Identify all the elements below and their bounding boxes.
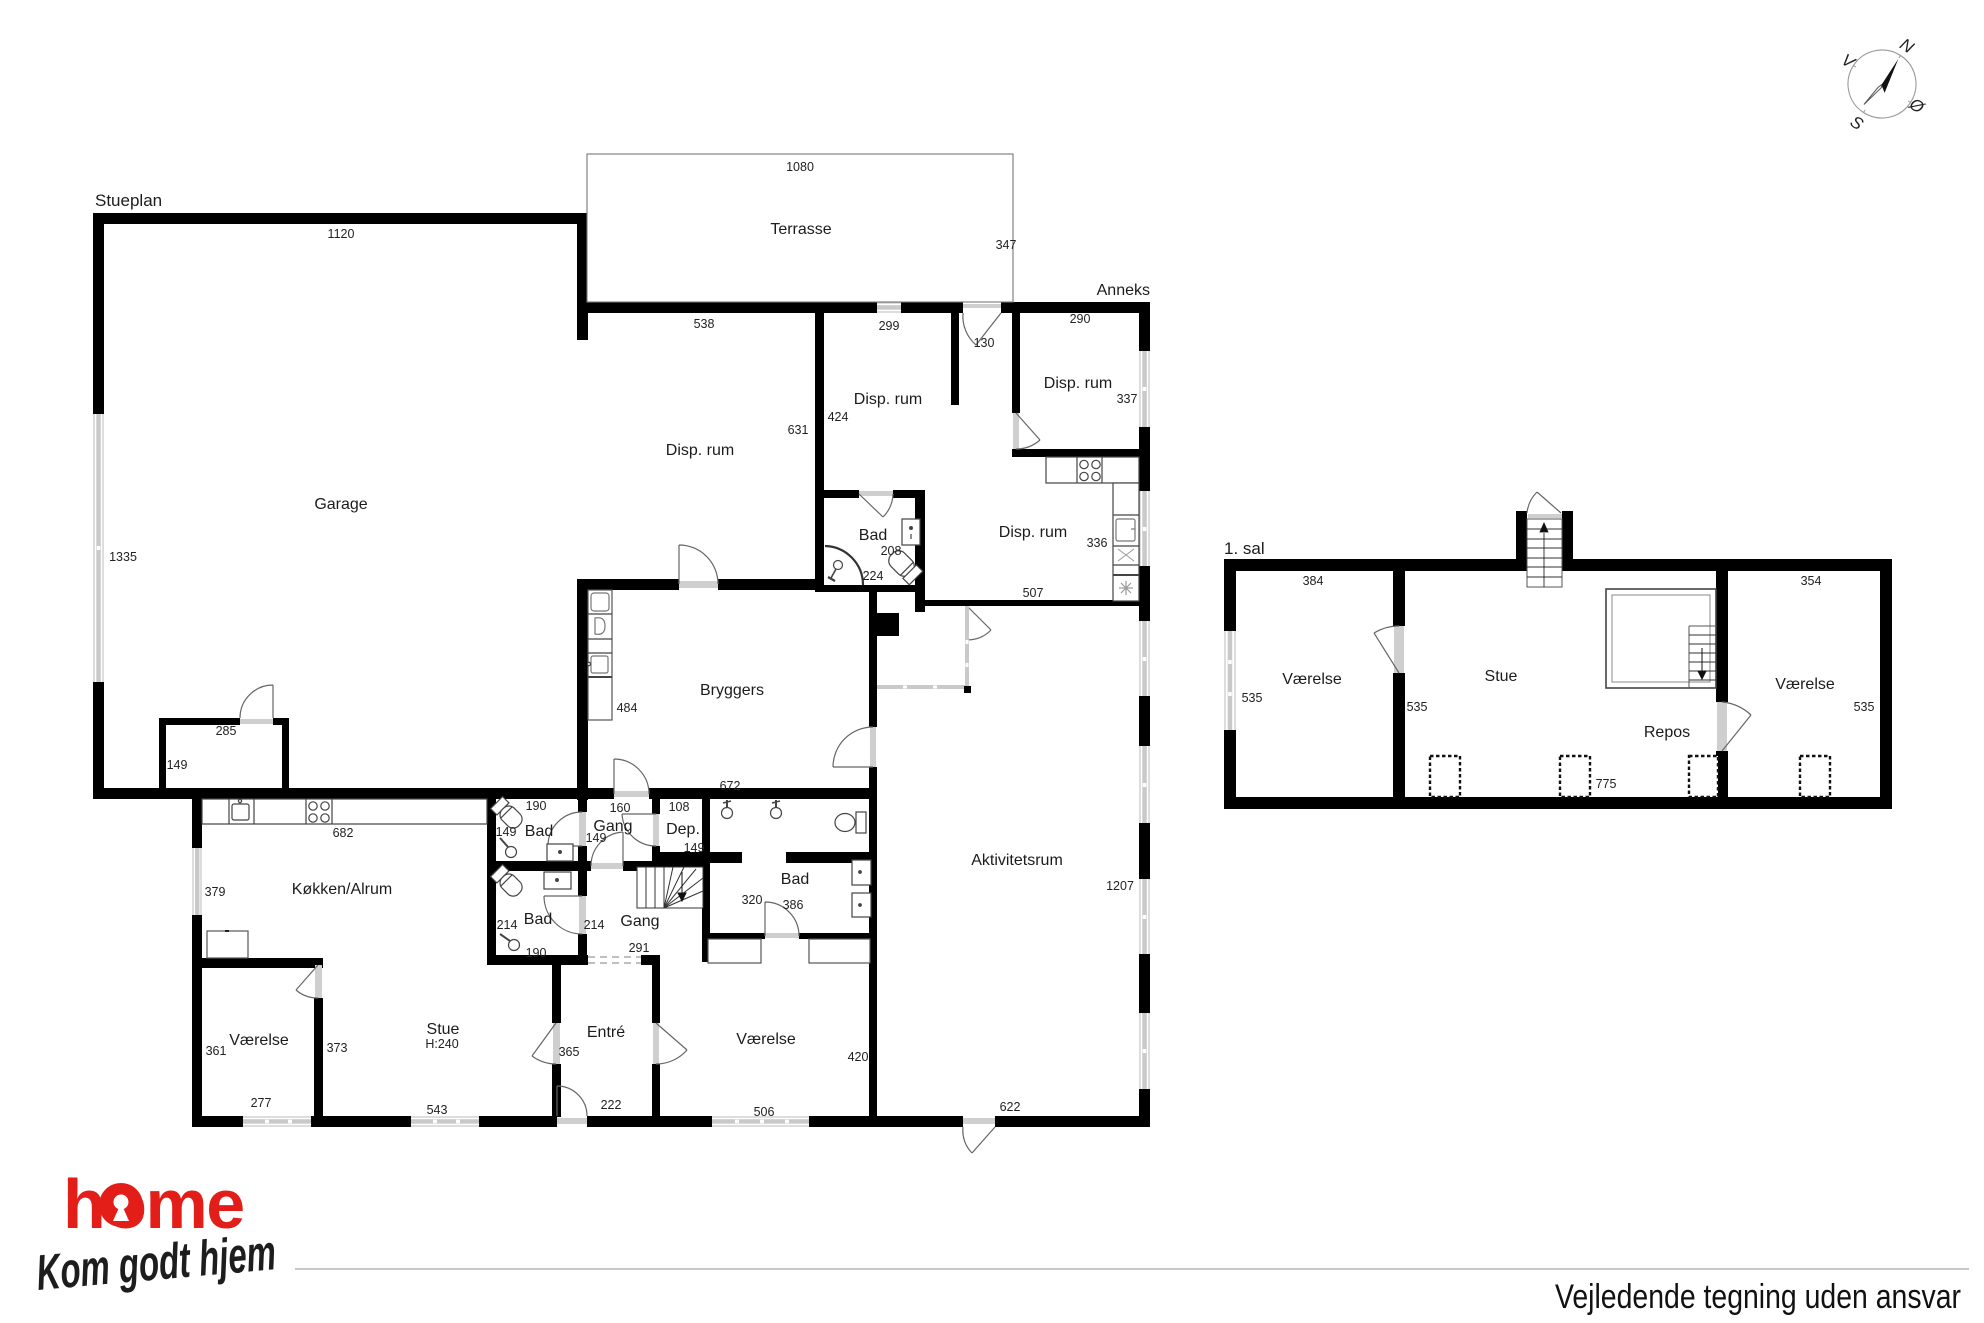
svg-text:Aktivitetsrum: Aktivitetsrum xyxy=(971,852,1063,869)
svg-text:Disp. rum: Disp. rum xyxy=(999,524,1067,541)
svg-text:130: 130 xyxy=(974,336,995,350)
svg-text:775: 775 xyxy=(1596,777,1617,791)
svg-text:506: 506 xyxy=(754,1105,775,1119)
svg-text:208: 208 xyxy=(881,544,902,558)
svg-text:Garage: Garage xyxy=(314,496,367,513)
svg-text:543: 543 xyxy=(427,1103,448,1117)
svg-text:Værelse: Værelse xyxy=(229,1032,289,1049)
svg-text:1120: 1120 xyxy=(328,227,355,241)
svg-text:424: 424 xyxy=(828,410,849,424)
svg-text:507: 507 xyxy=(1023,586,1044,600)
svg-text:384: 384 xyxy=(1303,574,1324,588)
svg-text:535: 535 xyxy=(1407,700,1428,714)
svg-text:Repos: Repos xyxy=(1644,724,1690,741)
svg-text:222: 222 xyxy=(601,1098,622,1112)
svg-text:Bad: Bad xyxy=(524,911,552,928)
svg-text:285: 285 xyxy=(216,724,237,738)
svg-text:Disp. rum: Disp. rum xyxy=(666,442,734,459)
svg-text:320: 320 xyxy=(742,893,763,907)
svg-text:Bad: Bad xyxy=(525,823,553,840)
svg-text:Stueplan: Stueplan xyxy=(95,191,162,210)
svg-text:373: 373 xyxy=(327,1041,348,1055)
svg-text:214: 214 xyxy=(584,918,605,932)
svg-text:365: 365 xyxy=(559,1045,580,1059)
svg-text:386: 386 xyxy=(783,898,804,912)
svg-text:1207: 1207 xyxy=(1106,879,1134,893)
svg-text:149: 149 xyxy=(167,758,188,772)
svg-text:631: 631 xyxy=(788,423,809,437)
svg-text:Stue: Stue xyxy=(427,1021,460,1038)
svg-text:290: 290 xyxy=(1070,312,1091,326)
svg-text:Bad: Bad xyxy=(859,527,887,544)
svg-text:Værelse: Værelse xyxy=(736,1031,796,1048)
svg-text:379: 379 xyxy=(205,885,226,899)
svg-text:1080: 1080 xyxy=(786,160,814,174)
svg-text:Køkken/Alrum: Køkken/Alrum xyxy=(292,881,392,898)
svg-text:Værelse: Værelse xyxy=(1282,671,1342,688)
svg-text:Bad: Bad xyxy=(781,871,809,888)
svg-text:214: 214 xyxy=(497,918,518,932)
svg-text:347: 347 xyxy=(996,238,1017,252)
svg-text:535: 535 xyxy=(1242,691,1263,705)
svg-text:Terrasse: Terrasse xyxy=(770,221,831,238)
svg-text:149: 149 xyxy=(684,841,705,855)
svg-text:420: 420 xyxy=(848,1050,869,1064)
svg-text:535: 535 xyxy=(1854,700,1875,714)
svg-text:Bryggers: Bryggers xyxy=(700,682,764,699)
svg-text:622: 622 xyxy=(1000,1100,1021,1114)
svg-text:354: 354 xyxy=(1801,574,1822,588)
svg-text:672: 672 xyxy=(720,779,741,793)
svg-text:149: 149 xyxy=(586,831,607,845)
svg-text:Stue: Stue xyxy=(1485,668,1518,685)
svg-text:H:240: H:240 xyxy=(425,1037,458,1051)
svg-text:149: 149 xyxy=(496,825,517,839)
svg-text:Vejledende tegning uden ansvar: Vejledende tegning uden ansvar xyxy=(1555,1278,1961,1316)
svg-text:682: 682 xyxy=(333,826,354,840)
svg-text:336: 336 xyxy=(1087,536,1108,550)
svg-text:224: 224 xyxy=(863,569,884,583)
svg-text:337: 337 xyxy=(1117,392,1138,406)
svg-text:Dep.: Dep. xyxy=(666,821,700,838)
svg-text:538: 538 xyxy=(694,317,715,331)
svg-text:1335: 1335 xyxy=(109,550,137,564)
svg-text:Værelse: Værelse xyxy=(1775,676,1835,693)
svg-text:Entré: Entré xyxy=(587,1024,625,1041)
svg-text:160: 160 xyxy=(610,801,631,815)
svg-text:Anneks: Anneks xyxy=(1097,282,1150,299)
svg-text:299: 299 xyxy=(879,319,900,333)
svg-text:484: 484 xyxy=(617,701,638,715)
svg-text:1. sal: 1. sal xyxy=(1224,539,1265,558)
svg-text:361: 361 xyxy=(206,1044,227,1058)
svg-text:Gang: Gang xyxy=(620,913,659,930)
svg-text:Disp. rum: Disp. rum xyxy=(1044,375,1112,392)
svg-text:108: 108 xyxy=(669,800,690,814)
svg-text:190: 190 xyxy=(526,946,547,960)
svg-text:291: 291 xyxy=(629,941,650,955)
svg-text:190: 190 xyxy=(526,799,547,813)
svg-text:Disp. rum: Disp. rum xyxy=(854,391,922,408)
svg-text:277: 277 xyxy=(251,1096,272,1110)
